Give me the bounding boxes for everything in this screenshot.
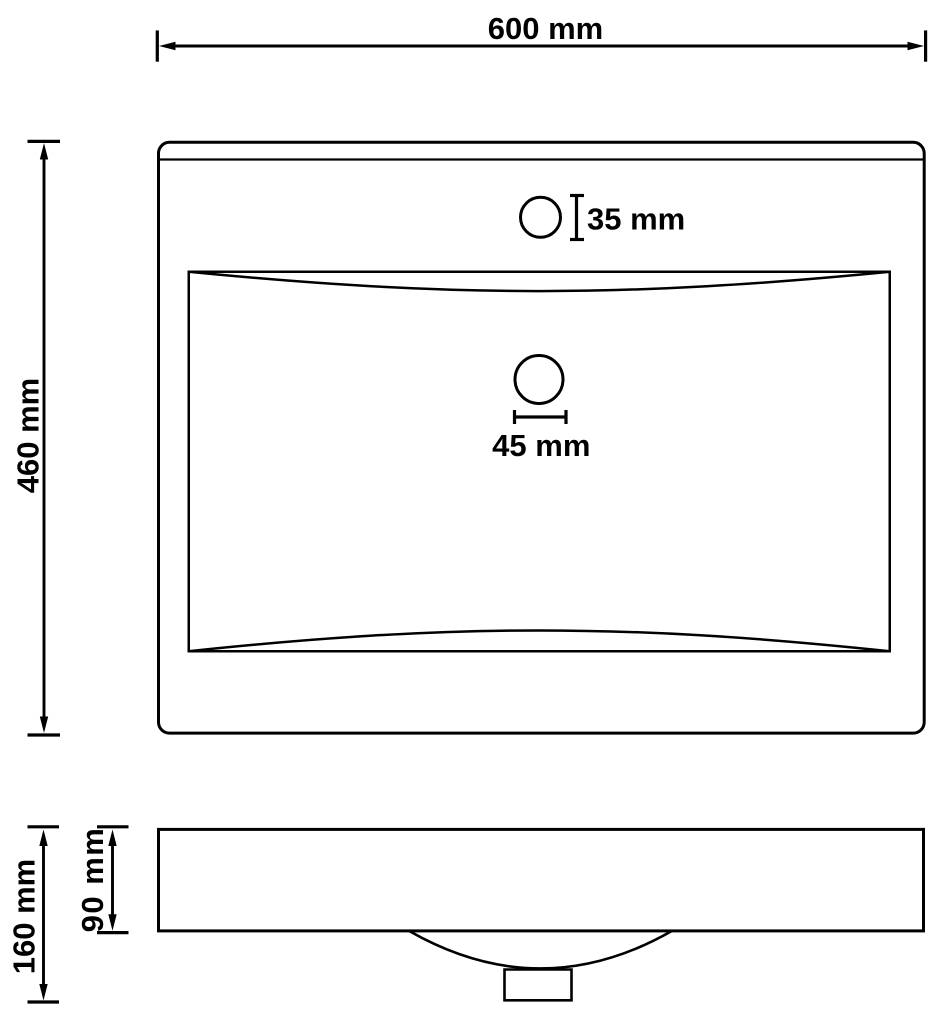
svg-text:45 mm: 45 mm: [492, 428, 590, 463]
svg-text:35 mm: 35 mm: [587, 202, 685, 237]
svg-text:600 mm: 600 mm: [488, 11, 603, 46]
svg-text:160 mm: 160 mm: [7, 859, 42, 974]
svg-text:460 mm: 460 mm: [11, 378, 46, 493]
svg-text:90 mm: 90 mm: [75, 827, 110, 933]
